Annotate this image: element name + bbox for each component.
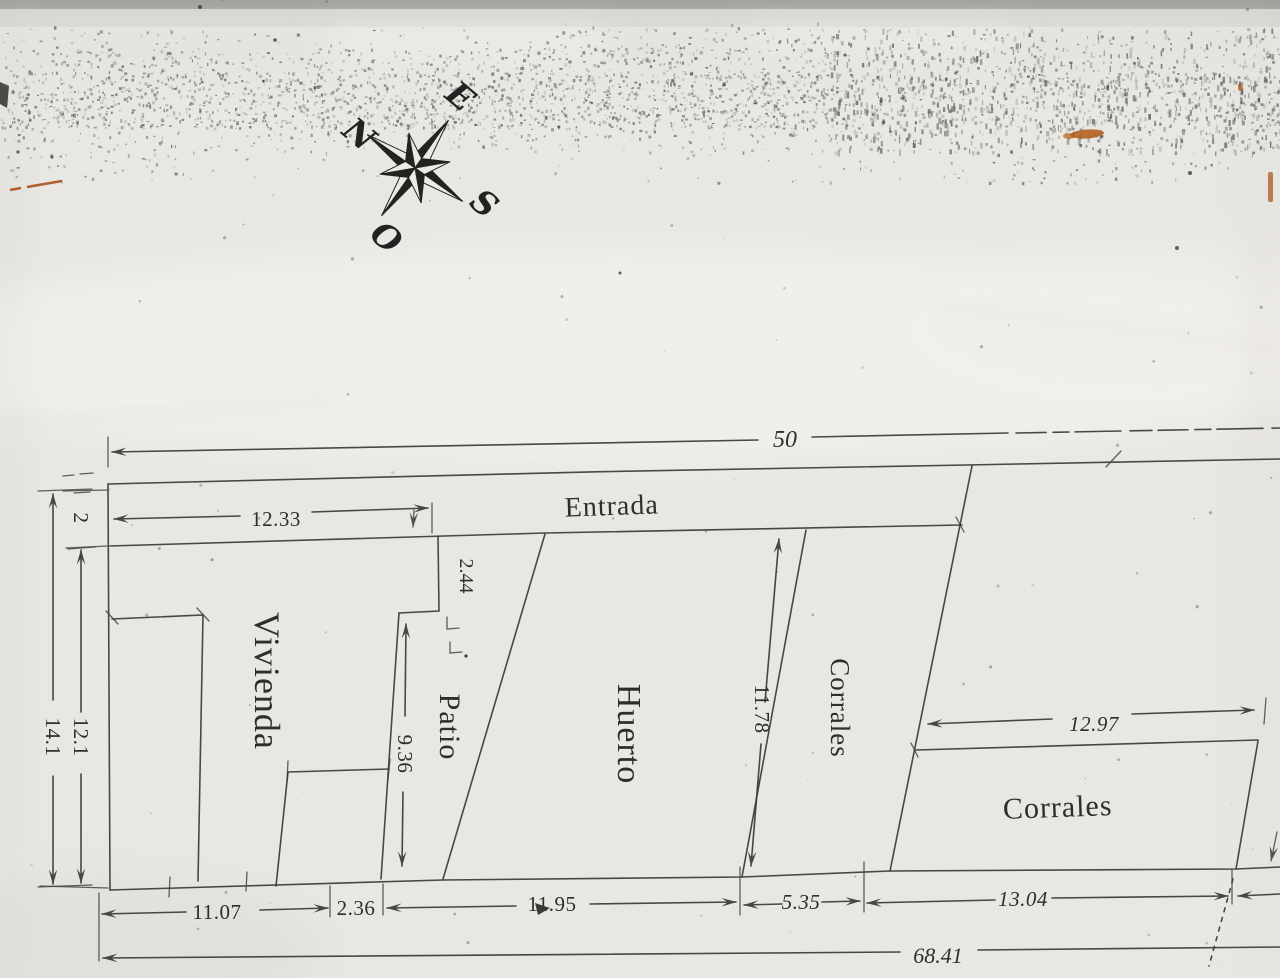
dim-patio-side-label: 9.36 [393,735,417,774]
dim-bottom-seg4-label: 5.35 [782,890,821,914]
scanned-plot-plan-page: N E S O 50 Entrada 12.33 [0,0,1280,978]
area-label-corrales-lower: Corrales [1002,789,1113,826]
dim-bottom-seg1-label: 11.07 [193,900,242,924]
dim-top-width-label: 50 [773,427,797,453]
dim-bottom-seg3-label: 11.95 [528,892,577,916]
area-label-corrales-strip: Corrales [825,658,855,757]
area-label-huerto: Huerto [610,684,647,784]
plot-plan-scan: N E S O 50 Entrada 12.33 [0,0,1280,978]
paper-background [0,0,1280,978]
dim-step-depth-label: 2.44 [455,559,477,594]
dim-entrada-width-label: 12.33 [251,507,301,531]
dim-corrales-width-label: 12.97 [1069,712,1120,736]
area-label-vivienda: Vivienda [247,612,287,750]
dim-bottom-seg5-label: 13.04 [998,887,1048,911]
dim-left-inner-label: 12.1 [69,718,93,757]
dim-bottom-seg2-label: 2.36 [337,896,376,920]
area-label-entrada: Entrada [564,489,659,523]
dim-left-outer-label: 14.1 [41,718,65,757]
area-label-patio: Patio [433,694,466,761]
dim-bottom-total-label: 68.41 [913,943,963,968]
dim-left-upper-label: 2 [69,513,93,524]
